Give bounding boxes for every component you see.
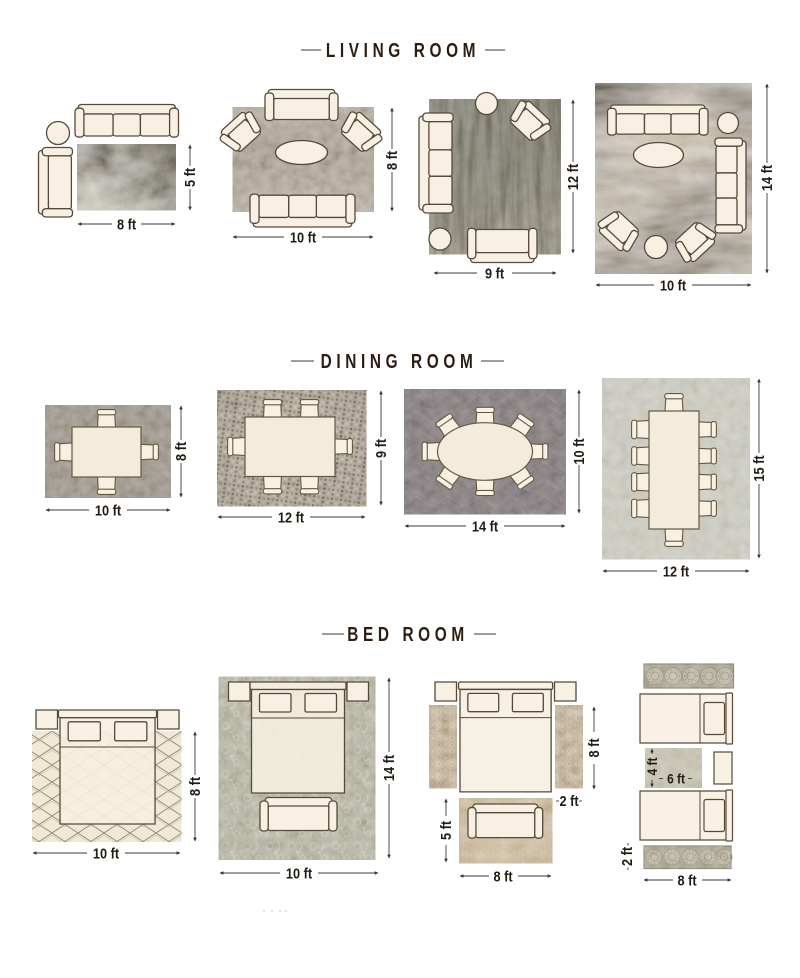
svg-text:8 ft: 8 ft [117,215,136,232]
svg-text:10 ft: 10 ft [570,438,587,465]
svg-text:8 ft: 8 ft [186,777,203,796]
svg-text:9 ft: 9 ft [485,264,504,281]
svg-text:12 ft: 12 ft [663,562,690,579]
svg-text:10 ft: 10 ft [95,501,122,518]
svg-text:5 ft: 5 ft [181,168,198,187]
svg-text:8 ft: 8 ft [585,738,602,757]
svg-text:14 ft: 14 ft [380,755,397,782]
svg-text:12 ft: 12 ft [278,508,305,525]
svg-text:8 ft: 8 ft [172,442,189,461]
svg-text:8 ft: 8 ft [493,867,512,884]
svg-text:2 ft: 2 ft [618,847,635,866]
svg-text:14 ft: 14 ft [472,517,499,534]
svg-text:4 ft: 4 ft [644,757,660,775]
svg-text:10 ft: 10 ft [286,864,313,881]
svg-text:8 ft: 8 ft [677,871,696,888]
svg-text:DINING ROOM: DINING ROOM [321,350,478,372]
svg-text:12 ft: 12 ft [564,164,581,191]
svg-text:15 ft: 15 ft [750,455,767,482]
svg-text:5 ft: 5 ft [437,821,454,840]
svg-text:10 ft: 10 ft [93,844,120,861]
svg-text:8 ft: 8 ft [383,151,400,170]
svg-text:10 ft: 10 ft [660,276,687,293]
svg-text:BED ROOM: BED ROOM [347,623,469,645]
svg-text:6 ft: 6 ft [667,771,685,787]
svg-text:14 ft: 14 ft [758,165,775,192]
svg-text:2 ft: 2 ft [559,792,578,809]
svg-text:LIVING ROOM: LIVING ROOM [326,39,480,61]
svg-text:9 ft: 9 ft [372,439,389,458]
svg-text:10 ft: 10 ft [290,228,317,245]
